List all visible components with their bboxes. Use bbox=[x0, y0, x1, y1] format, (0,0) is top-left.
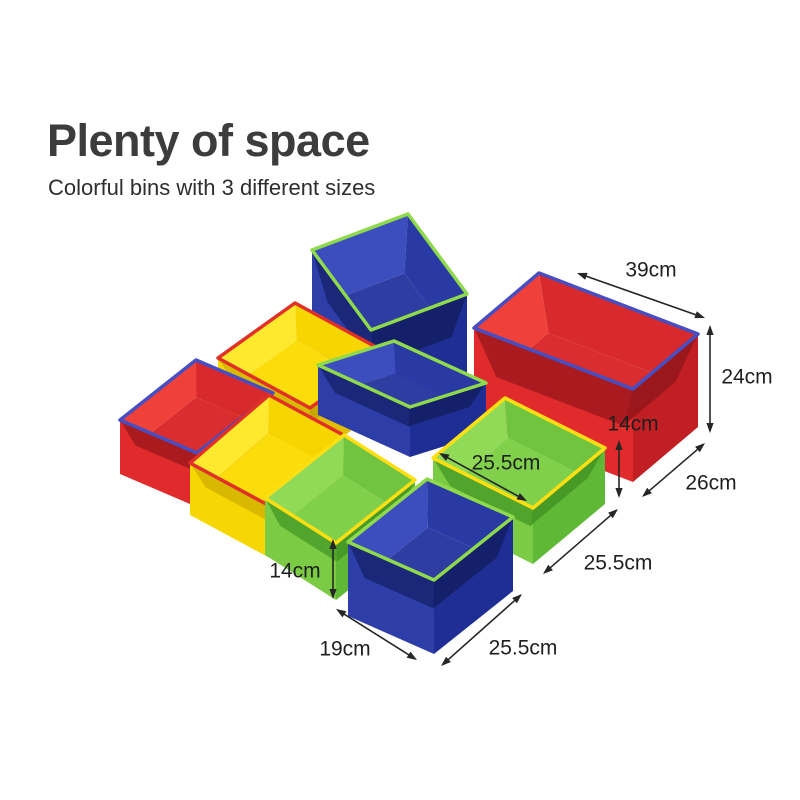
dimension-height-24cm: 24cm bbox=[706, 325, 772, 433]
dimension-label-width-19cm: 19cm bbox=[319, 638, 370, 661]
dimension-label-width-39cm: 39cm bbox=[625, 259, 676, 282]
product-infographic: Plenty of space Colorful bins with 3 dif… bbox=[0, 0, 800, 800]
page-title: Plenty of space bbox=[47, 116, 667, 166]
header: Plenty of space Colorful bins with 3 dif… bbox=[47, 116, 667, 201]
dimension-label-height-14cm-right: 14cm bbox=[607, 413, 658, 436]
dimension-label-width-25-5cm-inside: 25.5cm bbox=[472, 452, 541, 475]
page-subtitle: Colorful bins with 3 different sizes bbox=[48, 175, 667, 201]
dimension-label-depth-25-5cm-bottom: 25.5cm bbox=[489, 637, 558, 660]
dimension-label-height-24cm: 24cm bbox=[721, 366, 772, 389]
dimension-label-depth-25-5cm-right: 25.5cm bbox=[584, 552, 653, 575]
dimension-label-depth-26cm: 26cm bbox=[685, 472, 736, 495]
dimension-label-height-14cm-left: 14cm bbox=[269, 560, 320, 583]
